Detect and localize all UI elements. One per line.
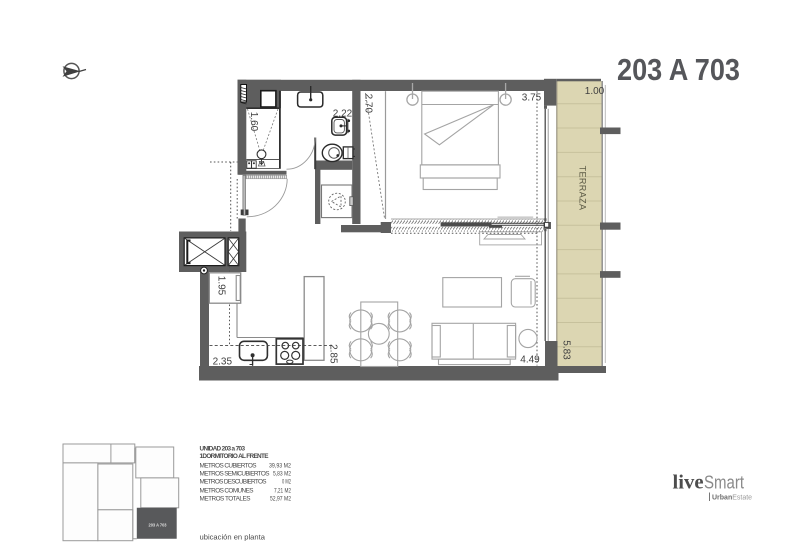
svg-text:METROS CUBIERTOS: METROS CUBIERTOS (200, 462, 257, 469)
svg-text:3.75: 3.75 (522, 92, 542, 103)
svg-text:UNIDAD 203 a 703: UNIDAD 203 a 703 (200, 446, 246, 453)
svg-text:2.35: 2.35 (213, 356, 233, 367)
svg-text:4.49: 4.49 (520, 354, 540, 365)
svg-text:5,83 M2: 5,83 M2 (273, 471, 291, 478)
svg-text:1.60: 1.60 (248, 112, 259, 132)
svg-text:TERRAZA: TERRAZA (578, 166, 588, 211)
svg-text:1.00: 1.00 (585, 86, 605, 97)
svg-text:1DORMITORIO AL FRENTE: 1DORMITORIO AL FRENTE (200, 453, 270, 460)
svg-text:METROS TOTALES: METROS TOTALES (200, 496, 251, 503)
svg-text:203 A 703: 203 A 703 (617, 52, 740, 87)
svg-text:5.83: 5.83 (561, 340, 572, 360)
svg-text:METROS COMUNES: METROS COMUNES (200, 488, 254, 495)
svg-text:0 M2: 0 M2 (282, 479, 291, 486)
svg-text:1.95: 1.95 (215, 276, 226, 296)
svg-text:live: live (673, 473, 704, 494)
svg-text:Smart: Smart (704, 472, 744, 493)
svg-text:ubicación en planta: ubicación en planta (200, 533, 266, 542)
svg-text:39,93 M2: 39,93 M2 (269, 462, 291, 469)
svg-text:203 A 703: 203 A 703 (149, 523, 168, 528)
svg-text:7,21 M2: 7,21 M2 (274, 488, 291, 495)
svg-text:2.22: 2.22 (333, 109, 353, 120)
svg-text:52,97 M2: 52,97 M2 (270, 496, 291, 503)
svg-text:METROS SEMICUBIERTOS: METROS SEMICUBIERTOS (200, 471, 270, 478)
svg-text:UrbanEstate: UrbanEstate (712, 495, 752, 502)
svg-text:METROS DESCUBIERTOS: METROS DESCUBIERTOS (200, 479, 267, 486)
svg-text:2.70: 2.70 (362, 94, 373, 114)
svg-text:2.85: 2.85 (327, 344, 338, 364)
